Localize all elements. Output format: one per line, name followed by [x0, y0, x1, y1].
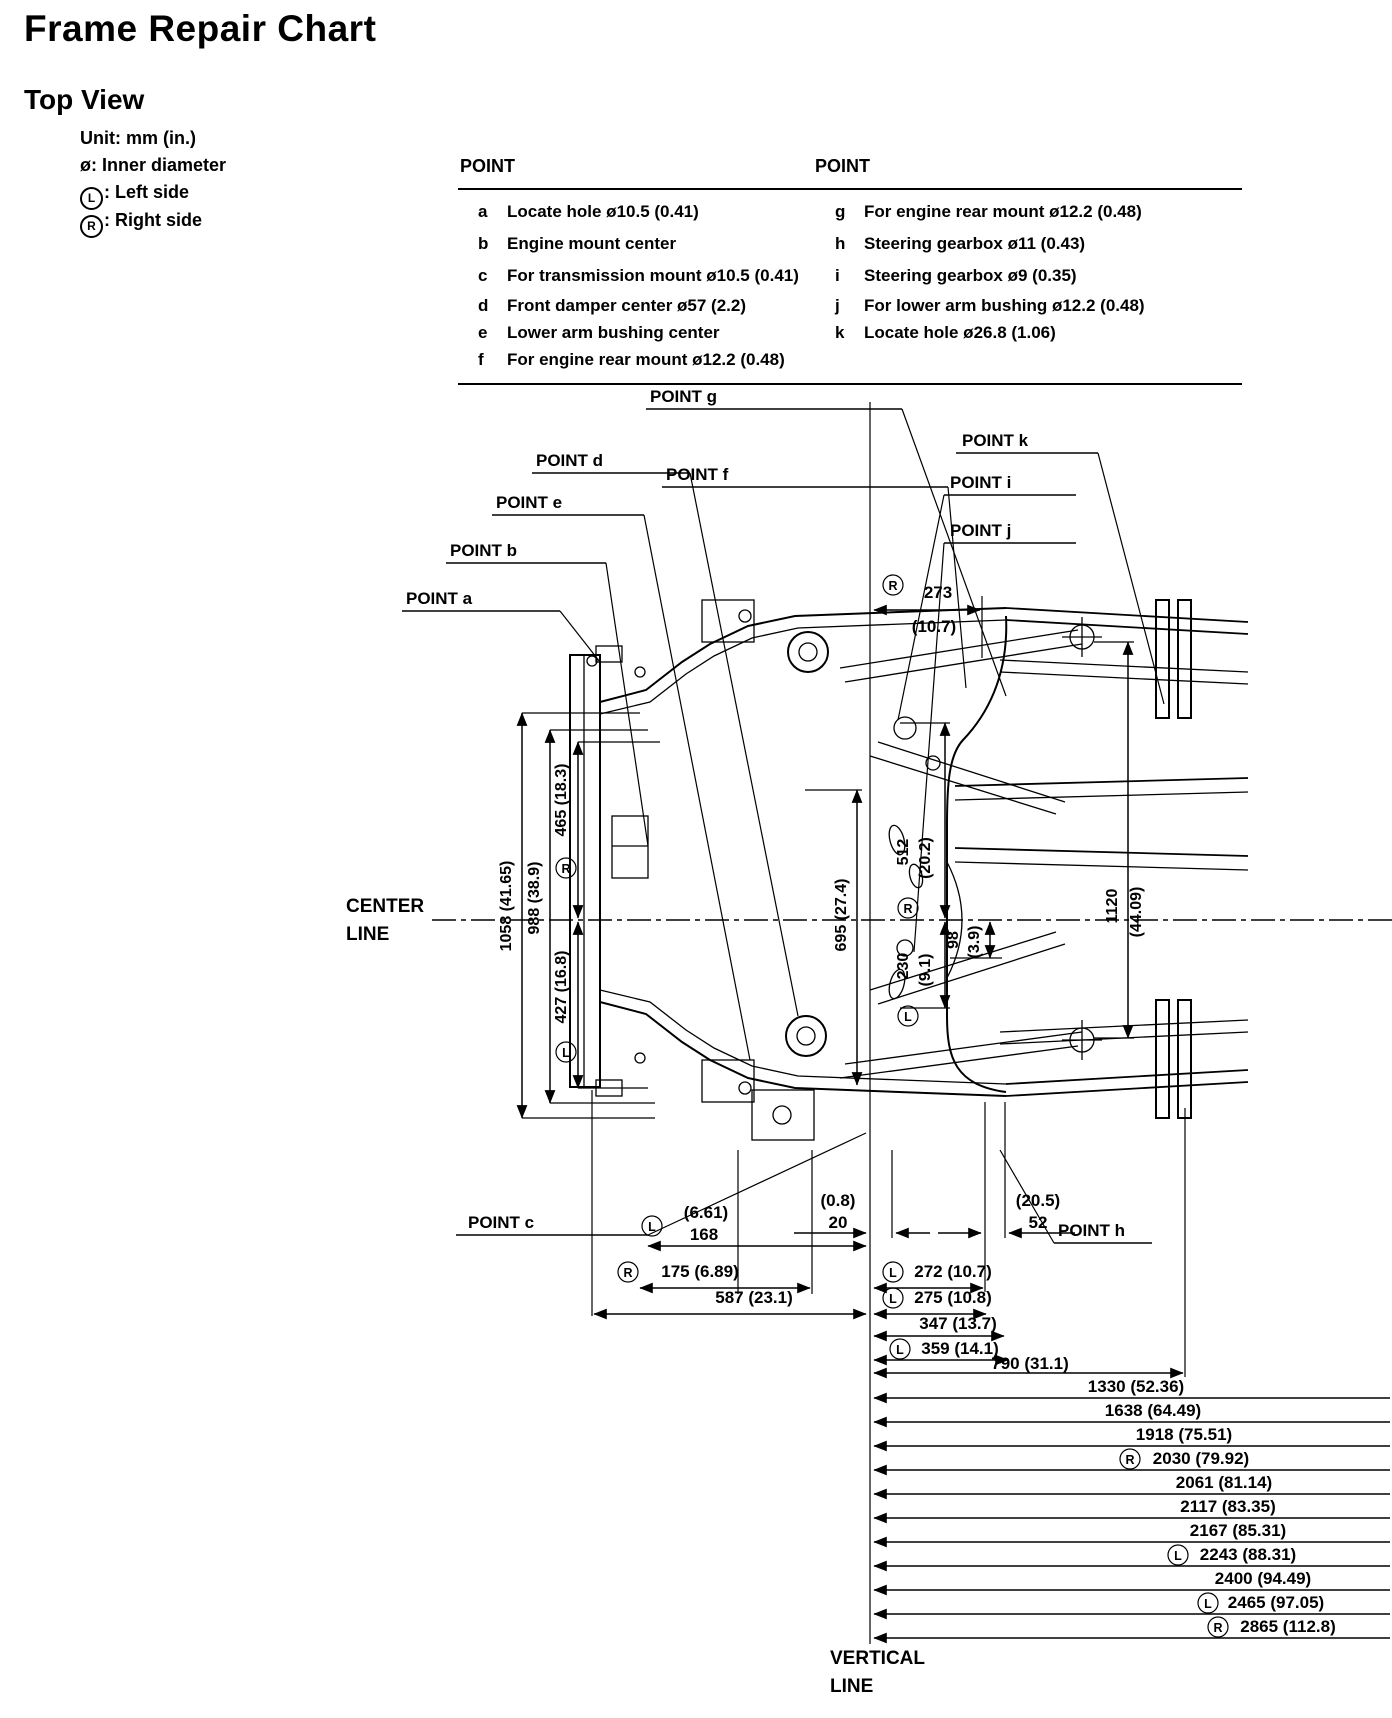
dim-988: 988 (38.9) — [526, 730, 550, 1103]
svg-text:230: 230 — [895, 953, 912, 980]
dim-230: 230 (9.1) L — [895, 922, 950, 1026]
dim-512: 512 (20.2) R — [895, 723, 950, 918]
svg-text:2061 (81.14): 2061 (81.14) — [1176, 1473, 1272, 1492]
svg-text:POINT e: POINT e — [496, 493, 562, 512]
svg-text:988 (38.9): 988 (38.9) — [526, 862, 543, 935]
svg-text:(3.9): (3.9) — [966, 926, 983, 959]
svg-text:(0.8): (0.8) — [821, 1191, 856, 1210]
dim-273: R 273 (10.7) — [874, 575, 982, 658]
svg-text:1058 (41.65): 1058 (41.65) — [498, 861, 515, 952]
dim-359: L 359 (14.1) — [874, 1339, 1008, 1360]
svg-text:POINT j: POINT j — [950, 521, 1011, 540]
svg-text:2167 (85.31): 2167 (85.31) — [1190, 1521, 1286, 1540]
dim-chain-group: 1330 (52.36) 1638 (64.49) 1918 (75.51) R… — [874, 1377, 1390, 1638]
dim-chain-1918: 1918 (75.51) — [874, 1425, 1390, 1446]
svg-text:(20.2): (20.2) — [917, 837, 934, 879]
frame-top-view-diagram: POINT g POINT d POINT f POINT e POINT b … — [0, 0, 1392, 1718]
svg-text:CENTER: CENTER — [346, 896, 424, 917]
svg-text:R: R — [903, 902, 912, 916]
svg-text:2243 (88.31): 2243 (88.31) — [1200, 1545, 1296, 1564]
svg-text:L: L — [896, 1343, 904, 1357]
dim-chain-2061: 2061 (81.14) — [874, 1473, 1390, 1494]
svg-text:2865 (112.8): 2865 (112.8) — [1240, 1617, 1335, 1636]
svg-text:L: L — [889, 1266, 897, 1280]
svg-text:512: 512 — [895, 839, 912, 866]
dim-1120: 1120 (44.09) — [1094, 642, 1145, 1038]
svg-text:POINT a: POINT a — [406, 589, 473, 608]
svg-text:(6.61): (6.61) — [684, 1203, 728, 1222]
dim-275: L 275 (10.8) — [874, 1288, 992, 1314]
svg-text:1918 (75.51): 1918 (75.51) — [1136, 1425, 1232, 1444]
svg-text:VERTICAL: VERTICAL — [830, 1648, 925, 1669]
engine-mount-bracket — [612, 816, 648, 878]
svg-text:POINT c: POINT c — [468, 1213, 534, 1232]
dim-chain-1638: 1638 (64.49) — [874, 1401, 1390, 1422]
svg-text:20: 20 — [829, 1213, 848, 1232]
svg-text:2400 (94.49): 2400 (94.49) — [1215, 1569, 1311, 1588]
subframe-drawing — [570, 600, 1248, 1140]
svg-text:POINT k: POINT k — [962, 431, 1029, 450]
svg-text:POINT b: POINT b — [450, 541, 517, 560]
svg-text:L: L — [562, 1046, 570, 1060]
svg-text:(10.7): (10.7) — [912, 617, 956, 636]
svg-text:POINT g: POINT g — [650, 387, 717, 406]
svg-text:(44.09): (44.09) — [1128, 887, 1145, 938]
dim-chain-2865: R 2865 (112.8) — [874, 1617, 1390, 1638]
dim-chain-2400: 2400 (94.49) — [874, 1569, 1390, 1590]
engine-rear-mount-hole — [788, 632, 828, 672]
svg-text:275 (10.8): 275 (10.8) — [914, 1288, 992, 1307]
svg-text:LINE: LINE — [346, 924, 389, 945]
svg-text:1330 (52.36): 1330 (52.36) — [1088, 1377, 1184, 1396]
svg-text:272 (10.7): 272 (10.7) — [914, 1262, 992, 1281]
svg-text:R: R — [561, 862, 570, 876]
svg-text:98: 98 — [945, 931, 962, 949]
dim-chain-1330: 1330 (52.36) — [874, 1377, 1390, 1398]
dim-347: 347 (13.7) — [874, 1314, 1004, 1336]
svg-text:L: L — [1174, 1549, 1182, 1563]
center-line-label: CENTER LINE — [346, 896, 424, 945]
svg-text:R: R — [1213, 1621, 1222, 1635]
dim-175: R 175 (6.89) — [618, 1262, 810, 1288]
dim-20: (0.8) 20 — [794, 1191, 930, 1233]
svg-text:2465 (97.05): 2465 (97.05) — [1228, 1593, 1324, 1612]
locate-hole-target — [1062, 1020, 1102, 1060]
dim-465: 465 (18.3) R — [553, 742, 578, 918]
svg-text:2117 (83.35): 2117 (83.35) — [1180, 1497, 1275, 1516]
svg-text:168: 168 — [690, 1225, 718, 1244]
vertical-line-label: VERTICAL LINE — [830, 1648, 925, 1697]
svg-text:R: R — [623, 1266, 632, 1280]
svg-text:R: R — [1125, 1453, 1134, 1467]
point-label-c: POINT c — [456, 1133, 866, 1235]
point-labels: POINT g POINT d POINT f POINT e POINT b … — [402, 387, 1164, 1243]
damper-center-hole — [786, 1016, 826, 1056]
dim-427: 427 (16.8) L — [553, 922, 578, 1088]
svg-text:POINT i: POINT i — [950, 473, 1011, 492]
dim-272: L 272 (10.7) — [874, 1262, 992, 1288]
svg-text:790 (31.1): 790 (31.1) — [991, 1354, 1069, 1373]
svg-text:R: R — [888, 579, 897, 593]
dim-52: (20.5) 52 — [938, 1191, 1075, 1233]
svg-text:L: L — [1204, 1597, 1212, 1611]
svg-text:POINT d: POINT d — [536, 451, 603, 470]
svg-text:427 (16.8): 427 (16.8) — [553, 951, 570, 1024]
dim-chain-2030: R 2030 (79.92) — [874, 1449, 1390, 1470]
dim-chain-2167: 2167 (85.31) — [874, 1521, 1390, 1542]
dim-1058: 1058 (41.65) — [498, 713, 522, 1118]
svg-text:52: 52 — [1029, 1213, 1048, 1232]
svg-text:POINT h: POINT h — [1058, 1221, 1125, 1240]
svg-text:1638 (64.49): 1638 (64.49) — [1105, 1401, 1201, 1420]
dim-587: 587 (23.1) — [594, 1288, 866, 1314]
svg-text:347 (13.7): 347 (13.7) — [919, 1314, 997, 1333]
svg-text:2030 (79.92): 2030 (79.92) — [1153, 1449, 1249, 1468]
steering-gearbox-hole — [894, 717, 916, 739]
point-label-b: POINT b — [446, 541, 648, 846]
svg-text:POINT f: POINT f — [666, 465, 729, 484]
svg-text:1120: 1120 — [1104, 889, 1121, 924]
transmission-mount — [752, 1090, 814, 1140]
svg-text:L: L — [904, 1010, 912, 1024]
svg-text:(20.5): (20.5) — [1016, 1191, 1060, 1210]
svg-text:LINE: LINE — [830, 1676, 873, 1697]
svg-text:273: 273 — [924, 583, 952, 602]
point-label-d: POINT d — [532, 451, 798, 1016]
svg-text:(9.1): (9.1) — [917, 954, 934, 987]
svg-text:695 (27.4): 695 (27.4) — [833, 879, 850, 952]
svg-text:587 (23.1): 587 (23.1) — [715, 1288, 793, 1307]
svg-text:L: L — [648, 1220, 656, 1234]
svg-text:175 (6.89): 175 (6.89) — [661, 1262, 739, 1281]
svg-text:L: L — [889, 1292, 897, 1306]
dim-center-group: 695 (27.4) 512 (20.2) R 98 (3.9) 230 (9.… — [805, 642, 1145, 1085]
dim-chain-2117: 2117 (83.35) — [874, 1497, 1390, 1518]
frame-repair-chart-page: { "page": { "title": "Frame Repair Chart… — [0, 0, 1392, 1718]
svg-text:465 (18.3): 465 (18.3) — [553, 764, 570, 837]
svg-text:359 (14.1): 359 (14.1) — [921, 1339, 999, 1358]
dim-chain-2465: L 2465 (97.05) — [874, 1593, 1390, 1614]
dim-chain-2243: L 2243 (88.31) — [874, 1545, 1390, 1566]
point-label-a: POINT a — [402, 589, 600, 662]
dim-98: 98 (3.9) — [945, 922, 1002, 958]
